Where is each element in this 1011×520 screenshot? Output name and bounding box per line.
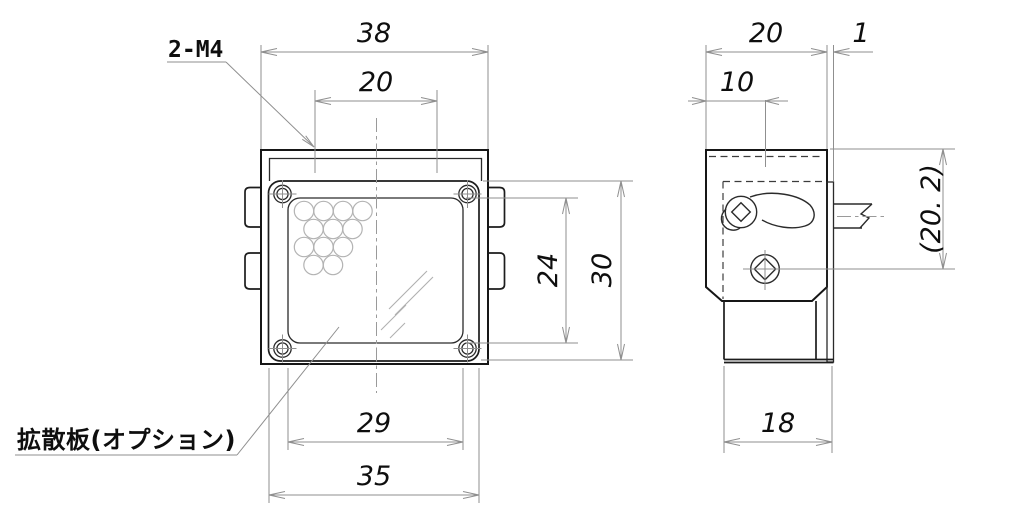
led [343, 219, 362, 238]
dim-text-side-10: 10 [720, 67, 754, 98]
dim-text-side-20-2: (20. 2) [916, 164, 947, 254]
led [323, 219, 342, 238]
dim-text-38: 38 [357, 18, 391, 49]
led [333, 201, 352, 220]
diffusion-plate-label: 拡散板(オプション) [17, 426, 236, 454]
dim-text-side-1: 1 [852, 18, 869, 49]
left-tab-lower [245, 253, 262, 289]
led [323, 255, 342, 274]
front-bezel [261, 150, 488, 364]
dim-side-lower-width: 18 [724, 366, 832, 453]
dim-side-hole-offset: 10 [688, 67, 788, 105]
dim-side-reference-height: (20. 2) [830, 149, 955, 269]
led [304, 219, 323, 238]
mounting-holes-label: 2-M4 [168, 37, 223, 63]
led [353, 201, 372, 220]
side-lower-body [724, 301, 816, 360]
corner-screw-bottom-right [454, 335, 482, 363]
clamp-lever [721, 193, 814, 230]
dim-text-side-20: 20 [749, 18, 783, 49]
dim-text-20: 20 [359, 67, 393, 98]
led [294, 237, 313, 256]
led-array [294, 201, 372, 274]
dim-front-window-height: 24 [466, 198, 578, 343]
dim-text-29: 29 [357, 408, 391, 439]
reflection-marks [381, 271, 433, 338]
dim-text-30: 30 [587, 253, 618, 287]
faceplate [269, 181, 480, 361]
right-tab-lower [488, 253, 505, 289]
set-screw [743, 250, 955, 290]
callout-mounting-holes: 2-M4 [167, 37, 314, 147]
technical-drawing: 38 20 24 30 29 35 2-M4 拡散板(オプション) [0, 0, 1011, 520]
dim-text-35: 35 [357, 461, 391, 492]
cable [834, 204, 888, 228]
led [314, 237, 333, 256]
dim-text-24: 24 [533, 253, 564, 287]
led [304, 255, 323, 274]
dim-side-plate-thickness: 1 [834, 18, 874, 181]
dim-text-side-18: 18 [761, 408, 795, 439]
led [314, 201, 333, 220]
corner-screw-top-right [454, 180, 482, 208]
side-bottom-edges [724, 360, 834, 363]
led [294, 201, 313, 220]
front-view [245, 118, 505, 393]
led [333, 237, 352, 256]
right-tab-upper [488, 188, 505, 228]
front-bezel-inner-edge [270, 159, 482, 182]
left-tab-upper [245, 188, 262, 228]
drawing-canvas: 38 20 24 30 29 35 2-M4 拡散板(オプション) [0, 0, 1011, 520]
dim-front-window-width: 29 [288, 368, 463, 450]
